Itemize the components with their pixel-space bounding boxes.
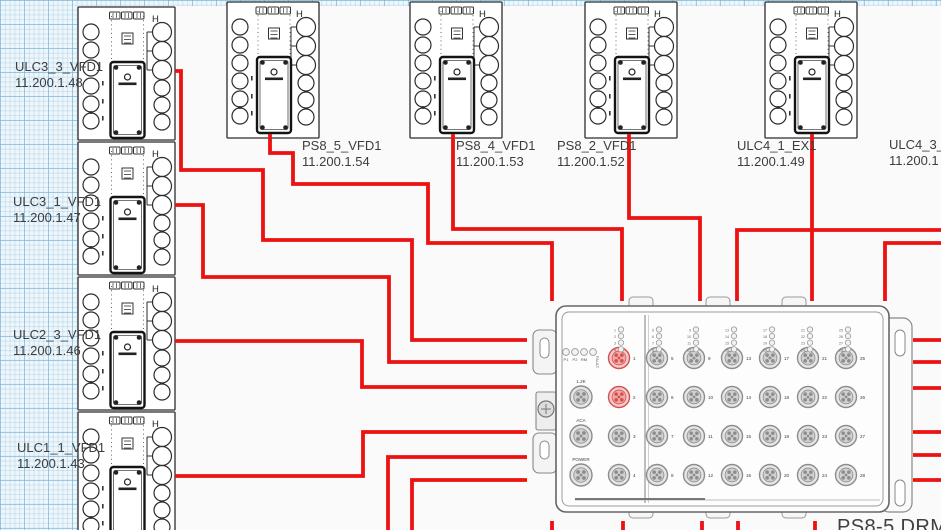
- screw: [137, 65, 142, 70]
- side-connector-power[interactable]: [570, 464, 592, 486]
- terminal-circle: [83, 96, 99, 112]
- terminal-circle: [153, 61, 172, 80]
- status-led-label: FAULT: [595, 356, 600, 369]
- terminal-circle: [655, 56, 674, 75]
- screw: [798, 125, 803, 130]
- pin-mark: [434, 111, 436, 116]
- top-connector: [122, 282, 133, 289]
- terminal-circle: [590, 91, 606, 107]
- port-led-number: 16: [725, 348, 729, 352]
- terminal-circle: [590, 108, 606, 124]
- port-led-number: 27: [839, 342, 843, 346]
- port-number: 18: [784, 395, 790, 400]
- screw-slot: [895, 330, 905, 356]
- port-led-number: 14: [725, 335, 729, 339]
- port-led: [618, 347, 623, 352]
- network-wire[interactable]: [388, 457, 527, 530]
- terminal-circle: [480, 37, 499, 56]
- m12-port-2[interactable]: [609, 387, 630, 408]
- terminal-circle: [232, 108, 248, 124]
- pin-mark: [251, 111, 253, 116]
- brand-logo: [125, 74, 131, 80]
- port-led-number: 17: [763, 329, 767, 333]
- device-marker: H: [834, 9, 841, 20]
- pin-mark: [609, 94, 611, 99]
- screw: [443, 125, 448, 130]
- screw-slot: [540, 338, 549, 358]
- port-led: [807, 347, 812, 352]
- port-led: [656, 327, 661, 332]
- terminal-circle: [83, 294, 99, 310]
- terminal-circle: [656, 109, 672, 125]
- pin-mark: [609, 111, 611, 116]
- brand-logo: [125, 209, 131, 215]
- port-number: 28: [860, 473, 866, 478]
- pin-mark: [102, 351, 104, 356]
- component-block: [269, 28, 280, 39]
- device-marker: H: [152, 149, 159, 160]
- port-number: 26: [860, 395, 866, 400]
- terminal-circle: [83, 366, 99, 382]
- terminal-circle: [154, 350, 170, 366]
- screw: [260, 60, 265, 65]
- pin-mark: [609, 76, 611, 81]
- drive-module: [111, 197, 145, 273]
- terminal-circle: [83, 177, 99, 193]
- port-number: 12: [708, 473, 714, 478]
- terminal-circle: [154, 232, 170, 248]
- port-number: 22: [822, 395, 828, 400]
- brand-logo: [454, 69, 460, 75]
- port-led: [845, 333, 850, 338]
- pin-mark: [102, 234, 104, 239]
- screw: [641, 60, 646, 65]
- device-label-ps8_4-vfd1[interactable]: PS8_4_VFD111.200.1.53: [456, 138, 536, 170]
- screw: [114, 130, 119, 135]
- port-number: 4: [633, 473, 636, 478]
- m12-port-18[interactable]: [760, 387, 781, 408]
- screw: [114, 65, 119, 70]
- terminal-circle: [590, 37, 606, 53]
- terminal-circle: [83, 312, 99, 328]
- m12-port-26[interactable]: [836, 387, 857, 408]
- device-label-ulc3_3-vfd1[interactable]: ULC3_3_VFD111.200.1.48: [15, 59, 103, 91]
- status-led-label: P1: [564, 357, 570, 362]
- m12-port-15[interactable]: [722, 426, 743, 447]
- terminal-circle: [770, 55, 786, 71]
- terminal-circle: [770, 73, 786, 89]
- port-led-number: 15: [725, 342, 729, 346]
- m12-port-14[interactable]: [722, 387, 743, 408]
- pin-mark: [102, 521, 104, 526]
- terminal-circle: [590, 55, 606, 71]
- port-number: 14: [746, 395, 752, 400]
- screw: [114, 335, 119, 340]
- side-connector-aca[interactable]: [570, 425, 592, 447]
- top-connector: [122, 12, 133, 19]
- vfd-device-ps8_2[interactable]: H: [585, 2, 677, 138]
- top-connector: [806, 7, 817, 14]
- top-connector: [451, 7, 462, 14]
- terminal-circle: [415, 108, 431, 124]
- screw: [443, 60, 448, 65]
- port-led: [731, 340, 736, 345]
- top-connector: [110, 282, 121, 289]
- pin-mark: [102, 369, 104, 374]
- component-block: [122, 168, 133, 179]
- terminal-circle: [835, 56, 854, 75]
- device-label-ulc4_3-truncated[interactable]: ULC4_3_11.200.1: [889, 137, 941, 169]
- device-marker: H: [479, 9, 486, 20]
- top-connector: [134, 12, 145, 19]
- port-led-number: 11: [687, 342, 691, 346]
- port-led-number: 8: [652, 348, 654, 352]
- terminal-circle: [835, 37, 854, 56]
- pin-mark: [102, 116, 104, 121]
- port-led-number: 24: [801, 348, 805, 352]
- m12-port-4[interactable]: [609, 465, 630, 486]
- top-connector: [268, 7, 279, 14]
- drive-module: [111, 332, 145, 408]
- port-number: 11: [708, 434, 713, 439]
- side-connector-label: POWER: [572, 457, 590, 462]
- screw: [137, 470, 142, 475]
- port-number: 25: [860, 356, 866, 361]
- port-number: 23: [822, 434, 828, 439]
- top-connector: [134, 417, 145, 424]
- port-number: 9: [708, 356, 711, 361]
- port-number: 7: [671, 434, 674, 439]
- terminal-circle: [298, 109, 314, 125]
- component-block: [122, 438, 133, 449]
- terminal-circle: [153, 42, 172, 61]
- port-led-number: 4: [614, 348, 616, 352]
- terminal-circle: [83, 248, 99, 264]
- drm-title[interactable]: PS8-5 DRM1: [837, 516, 941, 530]
- screw: [137, 265, 142, 270]
- terminal-circle: [836, 75, 852, 91]
- terminal-circle: [298, 75, 314, 91]
- device-label-ulc4_1-ex1[interactable]: ULC4_1_EX111.200.1.49: [737, 138, 817, 170]
- port-number: 3: [633, 434, 636, 439]
- device-label-ulc2_3-vfd1[interactable]: ULC2_3_VFD111.200.1.46: [13, 327, 101, 359]
- terminal-circle: [590, 73, 606, 89]
- vfd-device-ulc4_1[interactable]: H: [765, 2, 857, 138]
- port-number: 8: [671, 473, 674, 478]
- m12-port-11[interactable]: [684, 426, 705, 447]
- terminal-circle: [153, 312, 172, 331]
- terminal-circle: [154, 215, 170, 231]
- terminal-circle: [232, 73, 248, 89]
- diagram-graphics: HHHHHHHHP1P2RMFAULT1.2KACAPOWER112233445…: [0, 0, 941, 530]
- terminal-circle: [297, 37, 316, 56]
- port-number: 19: [784, 434, 790, 439]
- terminal-circle: [770, 91, 786, 107]
- pin-mark: [102, 386, 104, 391]
- terminal-circle: [83, 159, 99, 175]
- status-led-fault: [590, 349, 597, 356]
- top-connector: [818, 7, 829, 14]
- device-label-ulc1_1-vfd1[interactable]: ULC1_1_VFD111.200.1.43: [17, 440, 105, 472]
- terminal-circle: [481, 75, 497, 91]
- port-number: 2: [633, 395, 636, 400]
- drm-device[interactable]: P1P2RMFAULT1.2KACAPOWER11223344556677889…: [533, 297, 912, 518]
- port-led: [618, 327, 623, 332]
- port-number: 6: [671, 395, 674, 400]
- terminal-circle: [770, 19, 786, 35]
- top-connector: [110, 147, 121, 154]
- pin-mark: [789, 94, 791, 99]
- port-led-number: 23: [801, 342, 805, 346]
- terminal-circle: [154, 367, 170, 383]
- screw: [821, 125, 826, 130]
- port-led: [807, 340, 812, 345]
- terminal-circle: [480, 56, 499, 75]
- port-led: [693, 327, 698, 332]
- terminal-circle: [154, 502, 170, 518]
- port-led-number: 3: [614, 342, 616, 346]
- terminal-circle: [656, 75, 672, 91]
- screw: [137, 130, 142, 135]
- vfd-device-ps8_4[interactable]: H: [410, 2, 502, 138]
- terminal-circle: [770, 37, 786, 53]
- port-number: 1: [633, 356, 636, 361]
- terminal-circle: [836, 92, 852, 108]
- brand-logo: [125, 344, 131, 350]
- m12-port-20[interactable]: [760, 465, 781, 486]
- port-led: [693, 340, 698, 345]
- status-led-label: P2: [573, 357, 579, 362]
- terminal-circle: [154, 485, 170, 501]
- port-number: 15: [746, 434, 752, 439]
- port-led-number: 19: [763, 342, 767, 346]
- m12-port-27[interactable]: [836, 426, 857, 447]
- component-block: [122, 33, 133, 44]
- component-block: [122, 303, 133, 314]
- screw: [798, 60, 803, 65]
- terminal-circle: [836, 109, 852, 125]
- port-led: [618, 333, 623, 338]
- port-led-number: 26: [839, 335, 843, 339]
- screw-slot: [895, 480, 905, 506]
- port-led: [769, 347, 774, 352]
- network-wire[interactable]: [885, 243, 941, 301]
- terminal-circle: [154, 114, 170, 130]
- terminal-circle: [153, 447, 172, 466]
- port-led: [731, 333, 736, 338]
- vfd-device-ps8_5[interactable]: H: [227, 2, 319, 138]
- terminal-circle: [153, 331, 172, 350]
- port-led: [845, 340, 850, 345]
- network-wire[interactable]: [629, 134, 700, 301]
- terminal-circle: [415, 19, 431, 35]
- port-led-number: 18: [763, 335, 767, 339]
- terminal-circle: [83, 231, 99, 247]
- screw: [466, 60, 471, 65]
- pin-mark: [789, 76, 791, 81]
- m12-port-22[interactable]: [798, 387, 819, 408]
- port-led-number: 22: [801, 335, 805, 339]
- m12-port-8[interactable]: [647, 465, 668, 486]
- port-number: 16: [746, 473, 752, 478]
- terminal-circle: [655, 37, 674, 56]
- status-led-label: RM: [581, 357, 587, 362]
- terminal-circle: [232, 91, 248, 107]
- screw: [114, 400, 119, 405]
- top-connector: [122, 147, 133, 154]
- terminal-circle: [153, 196, 172, 215]
- terminal-circle: [232, 37, 248, 53]
- m12-port-28[interactable]: [836, 465, 857, 486]
- port-number: 27: [860, 434, 866, 439]
- pin-mark: [251, 94, 253, 99]
- terminal-circle: [153, 428, 172, 447]
- terminal-circle: [154, 519, 170, 530]
- terminal-circle: [153, 177, 172, 196]
- port-led: [769, 333, 774, 338]
- port-led: [656, 333, 661, 338]
- m12-port-24[interactable]: [798, 465, 819, 486]
- port-led: [731, 347, 736, 352]
- screw: [137, 335, 142, 340]
- port-led-number: 13: [725, 329, 729, 333]
- side-connector-label: 1.2K: [576, 379, 586, 384]
- top-connector: [794, 7, 805, 14]
- port-led: [845, 327, 850, 332]
- side-connector-label: ACA: [576, 418, 586, 423]
- m12-port-6[interactable]: [647, 387, 668, 408]
- port-led-number: 2: [614, 335, 616, 339]
- m12-port-10[interactable]: [684, 387, 705, 408]
- terminal-circle: [83, 113, 99, 129]
- port-led: [807, 327, 812, 332]
- top-connector: [134, 147, 145, 154]
- terminal-circle: [154, 80, 170, 96]
- m12-port-19[interactable]: [760, 426, 781, 447]
- diagram-canvas: HHHHHHHHP1P2RMFAULT1.2KACAPOWER112233445…: [0, 0, 941, 530]
- top-connector: [463, 7, 474, 14]
- port-led-number: 7: [652, 342, 654, 346]
- top-connector: [122, 417, 133, 424]
- port-led: [693, 333, 698, 338]
- side-connector-1.2k[interactable]: [570, 386, 592, 408]
- terminal-circle: [154, 384, 170, 400]
- screw: [114, 200, 119, 205]
- screw: [137, 200, 142, 205]
- top-connector: [280, 7, 291, 14]
- terminal-circle: [415, 37, 431, 53]
- device-label-ps8_2-vfd1[interactable]: PS8_2_VFD111.200.1.52: [557, 138, 637, 170]
- brand-logo: [809, 69, 815, 75]
- terminal-circle: [83, 24, 99, 40]
- device-marker: H: [152, 14, 159, 25]
- screw-slot: [540, 441, 549, 459]
- port-number: 20: [784, 473, 790, 478]
- port-number: 21: [822, 356, 828, 361]
- screw: [641, 125, 646, 130]
- device-label-ulc3_1-vfd1[interactable]: ULC3_1_VFD111.200.1.47: [13, 194, 101, 226]
- top-connector: [256, 7, 267, 14]
- brand-logo: [125, 479, 131, 485]
- top-connector: [626, 7, 637, 14]
- port-number: 17: [784, 356, 790, 361]
- terminal-circle: [298, 92, 314, 108]
- port-led-number: 20: [763, 348, 767, 352]
- port-led-number: 25: [839, 329, 843, 333]
- network-wire[interactable]: [412, 480, 527, 530]
- m12-port-7[interactable]: [647, 426, 668, 447]
- brand-logo: [271, 69, 277, 75]
- m12-port-16[interactable]: [722, 465, 743, 486]
- m12-port-12[interactable]: [684, 465, 705, 486]
- port-led: [845, 347, 850, 352]
- device-label-ps8_5-vfd1[interactable]: PS8_5_VFD111.200.1.54: [302, 138, 382, 170]
- network-wire[interactable]: [175, 432, 527, 476]
- screw: [137, 400, 142, 405]
- port-led: [693, 347, 698, 352]
- terminal-circle: [590, 19, 606, 35]
- terminal-circle: [656, 92, 672, 108]
- terminal-circle: [83, 518, 99, 530]
- status-led-rm: [581, 349, 588, 356]
- screw: [114, 470, 119, 475]
- port-led-number: 28: [839, 348, 843, 352]
- terminal-circle: [297, 56, 316, 75]
- terminal-circle: [770, 108, 786, 124]
- port-led-number: 12: [687, 348, 691, 352]
- m12-port-23[interactable]: [798, 426, 819, 447]
- terminal-circle: [153, 23, 172, 42]
- screw: [283, 60, 288, 65]
- pin-mark: [251, 76, 253, 81]
- top-connector: [614, 7, 625, 14]
- terminal-circle: [655, 18, 674, 37]
- terminal-circle: [83, 383, 99, 399]
- brand-logo: [629, 69, 635, 75]
- network-wire[interactable]: [175, 341, 527, 387]
- terminal-circle: [154, 249, 170, 265]
- port-led-number: 9: [689, 329, 691, 333]
- m12-port-3[interactable]: [609, 426, 630, 447]
- pin-mark: [102, 486, 104, 491]
- terminal-circle: [153, 158, 172, 177]
- device-marker: H: [654, 9, 661, 20]
- terminal-circle: [83, 501, 99, 517]
- component-block: [807, 28, 818, 39]
- screw: [466, 125, 471, 130]
- component-block: [452, 28, 463, 39]
- top-connector: [638, 7, 649, 14]
- pin-mark: [102, 251, 104, 256]
- port-led-number: 10: [687, 335, 691, 339]
- port-led-number: 6: [652, 335, 654, 339]
- top-connector: [134, 282, 145, 289]
- terminal-circle: [83, 42, 99, 58]
- component-block: [627, 28, 638, 39]
- terminal-circle: [481, 109, 497, 125]
- screw: [260, 125, 265, 130]
- network-wire[interactable]: [737, 230, 941, 301]
- terminal-circle: [481, 92, 497, 108]
- terminal-circle: [153, 293, 172, 312]
- port-led: [731, 327, 736, 332]
- pin-mark: [434, 76, 436, 81]
- port-led-number: 1: [614, 329, 616, 333]
- status-led-p2: [572, 349, 579, 356]
- port-led: [769, 340, 774, 345]
- terminal-circle: [415, 91, 431, 107]
- terminal-circle: [83, 483, 99, 499]
